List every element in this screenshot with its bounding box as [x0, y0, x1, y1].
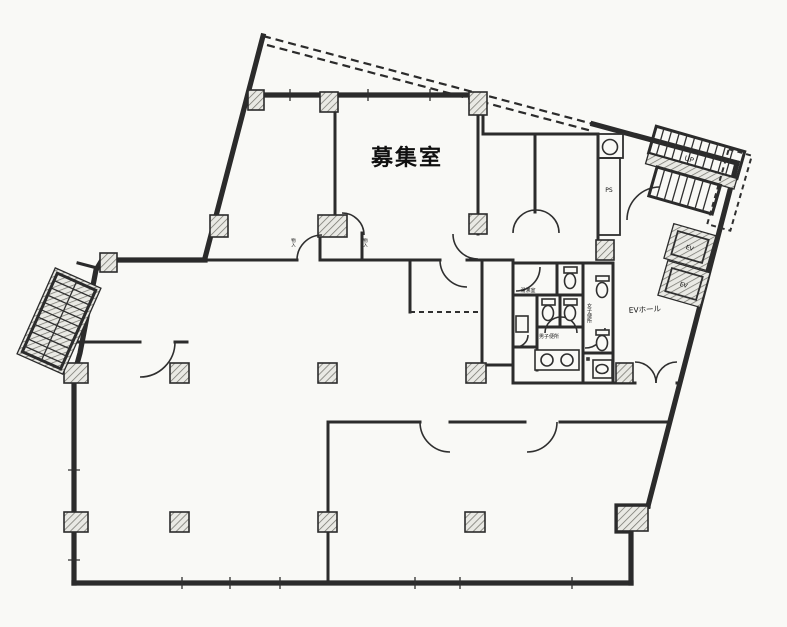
label-mens-toilet: 男子便所 [539, 333, 559, 340]
boundary-dashed-line-inner [267, 45, 592, 131]
door-arc [440, 260, 467, 287]
label-closet-right: 物入 [363, 237, 368, 248]
column [248, 90, 264, 110]
column [100, 253, 117, 272]
external-stair-link [78, 263, 97, 268]
main-staircase: UP [634, 126, 752, 230]
boundary-dashed-line [263, 36, 593, 124]
service-shafts [598, 134, 623, 235]
label-main-room: 募集室 [370, 145, 443, 171]
label-pipe-shaft: PS [605, 187, 613, 194]
double-door-arc [656, 362, 677, 383]
column [616, 363, 633, 383]
wall-north-step [483, 112, 598, 134]
column [210, 215, 228, 237]
column [469, 214, 487, 234]
column-notch [617, 506, 648, 531]
label-closet-left: 物入 [291, 237, 296, 248]
door-arc [453, 234, 478, 259]
wall-east-diagonal [648, 163, 737, 506]
wc-circle [603, 140, 618, 155]
door-arc-mop [516, 335, 528, 347]
column [466, 363, 486, 383]
column [465, 512, 485, 532]
closet-box [318, 215, 347, 237]
toilet-block [513, 263, 613, 383]
column [64, 512, 88, 532]
column [170, 512, 189, 532]
column [469, 92, 487, 115]
column [318, 363, 337, 383]
label-womens-toilet: 女子便所 [586, 302, 592, 324]
door-arc [297, 235, 322, 260]
column [64, 363, 88, 383]
wash-counter [535, 350, 579, 370]
column [320, 92, 338, 112]
double-door-arc [635, 362, 656, 383]
interior-walls [76, 110, 680, 583]
wall-west-upper [74, 260, 205, 375]
label-kitchenette: 湯沸室 [520, 287, 535, 294]
label-ev-hall: EVホール [628, 304, 661, 315]
floor-plan-scan: UP EV EV 募集室 EVホール 男子便所 女子便所 湯沸室 PS 物入 物… [0, 0, 787, 627]
pipe-shaft-box [598, 158, 620, 235]
floor-plan-svg: UP EV EV 募集室 EVホール 男子便所 女子便所 湯沸室 PS 物入 物… [0, 0, 787, 627]
column [170, 363, 189, 383]
door-arc [527, 422, 557, 452]
door-arc-ev-hall [627, 187, 660, 220]
column [318, 512, 337, 532]
door-arc [420, 422, 450, 452]
column [596, 240, 614, 260]
